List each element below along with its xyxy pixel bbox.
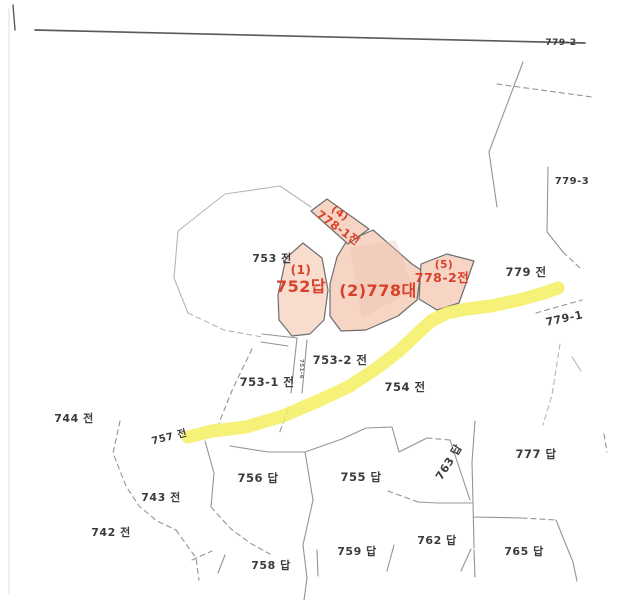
boundary-line bbox=[474, 550, 475, 577]
cadastral-map-svg: 779-2779-3753 전779 전779-1753-2 전753-1 전7… bbox=[0, 0, 619, 600]
boundary-line bbox=[522, 518, 556, 520]
label-763: 763 답 bbox=[432, 441, 465, 482]
label-779-2: 779-2 bbox=[545, 38, 576, 48]
label-743: 743 전 bbox=[141, 490, 180, 504]
scanned-map-page: 779-2779-3753 전779 전779-1753-2 전753-1 전7… bbox=[0, 0, 619, 600]
label-751-6-strip: 751-6 bbox=[298, 359, 304, 379]
boundary-line bbox=[543, 344, 560, 425]
boundary-line bbox=[427, 438, 450, 440]
boundary-line bbox=[497, 84, 592, 97]
label-757: 757 전 bbox=[150, 426, 188, 447]
boundary-line bbox=[188, 313, 262, 337]
boundary-line bbox=[556, 520, 573, 562]
boundary-line bbox=[218, 555, 225, 573]
label-754: 754 전 bbox=[384, 380, 425, 394]
boundary-line bbox=[192, 551, 212, 560]
boundary-line bbox=[388, 491, 418, 502]
label-753: 753 전 bbox=[252, 251, 291, 265]
boundary-line bbox=[178, 186, 311, 231]
boundary-line bbox=[573, 562, 577, 581]
boundary-line bbox=[205, 441, 214, 507]
label-779: 779 전 bbox=[505, 265, 546, 279]
boundary-line bbox=[13, 5, 15, 30]
boundary-line bbox=[472, 421, 475, 548]
boundary-line bbox=[474, 517, 522, 518]
label-744: 744 전 bbox=[54, 411, 93, 425]
label-765: 765 답 bbox=[504, 544, 543, 558]
boundary-line bbox=[230, 427, 427, 452]
label-777: 777 답 bbox=[515, 447, 556, 461]
boundary-line bbox=[461, 549, 471, 571]
label-753-2: 753-2 전 bbox=[313, 353, 368, 367]
boundary-line bbox=[604, 434, 607, 452]
label-779-3: 779-3 bbox=[555, 176, 589, 187]
label-755: 755 답 bbox=[340, 470, 381, 484]
label-779-1: 779-1 bbox=[544, 308, 584, 329]
label-752: 752답 bbox=[276, 277, 326, 296]
boundary-line bbox=[35, 30, 585, 43]
label-778: (2)778대 bbox=[339, 281, 416, 300]
label-756: 756 답 bbox=[237, 471, 278, 485]
boundary-line bbox=[387, 545, 394, 571]
label-762: 762 답 bbox=[417, 533, 456, 547]
boundary-line bbox=[317, 550, 318, 576]
boundary-line bbox=[572, 357, 581, 371]
boundary-line bbox=[211, 507, 270, 554]
label-752-no: (1) bbox=[291, 263, 312, 277]
label-778-2: 778-2전 bbox=[415, 270, 469, 285]
boundary-line bbox=[303, 452, 313, 600]
label-742: 742 전 bbox=[91, 525, 130, 539]
boundary-line bbox=[176, 530, 199, 580]
boundary-line bbox=[489, 62, 523, 207]
label-758: 758 답 bbox=[251, 558, 290, 572]
label-753-1: 753-1 전 bbox=[240, 375, 295, 389]
boundary-line bbox=[563, 252, 580, 268]
boundary-line bbox=[261, 342, 288, 346]
boundary-line bbox=[418, 502, 472, 503]
label-759: 759 답 bbox=[337, 544, 376, 558]
boundary-line bbox=[174, 231, 188, 313]
